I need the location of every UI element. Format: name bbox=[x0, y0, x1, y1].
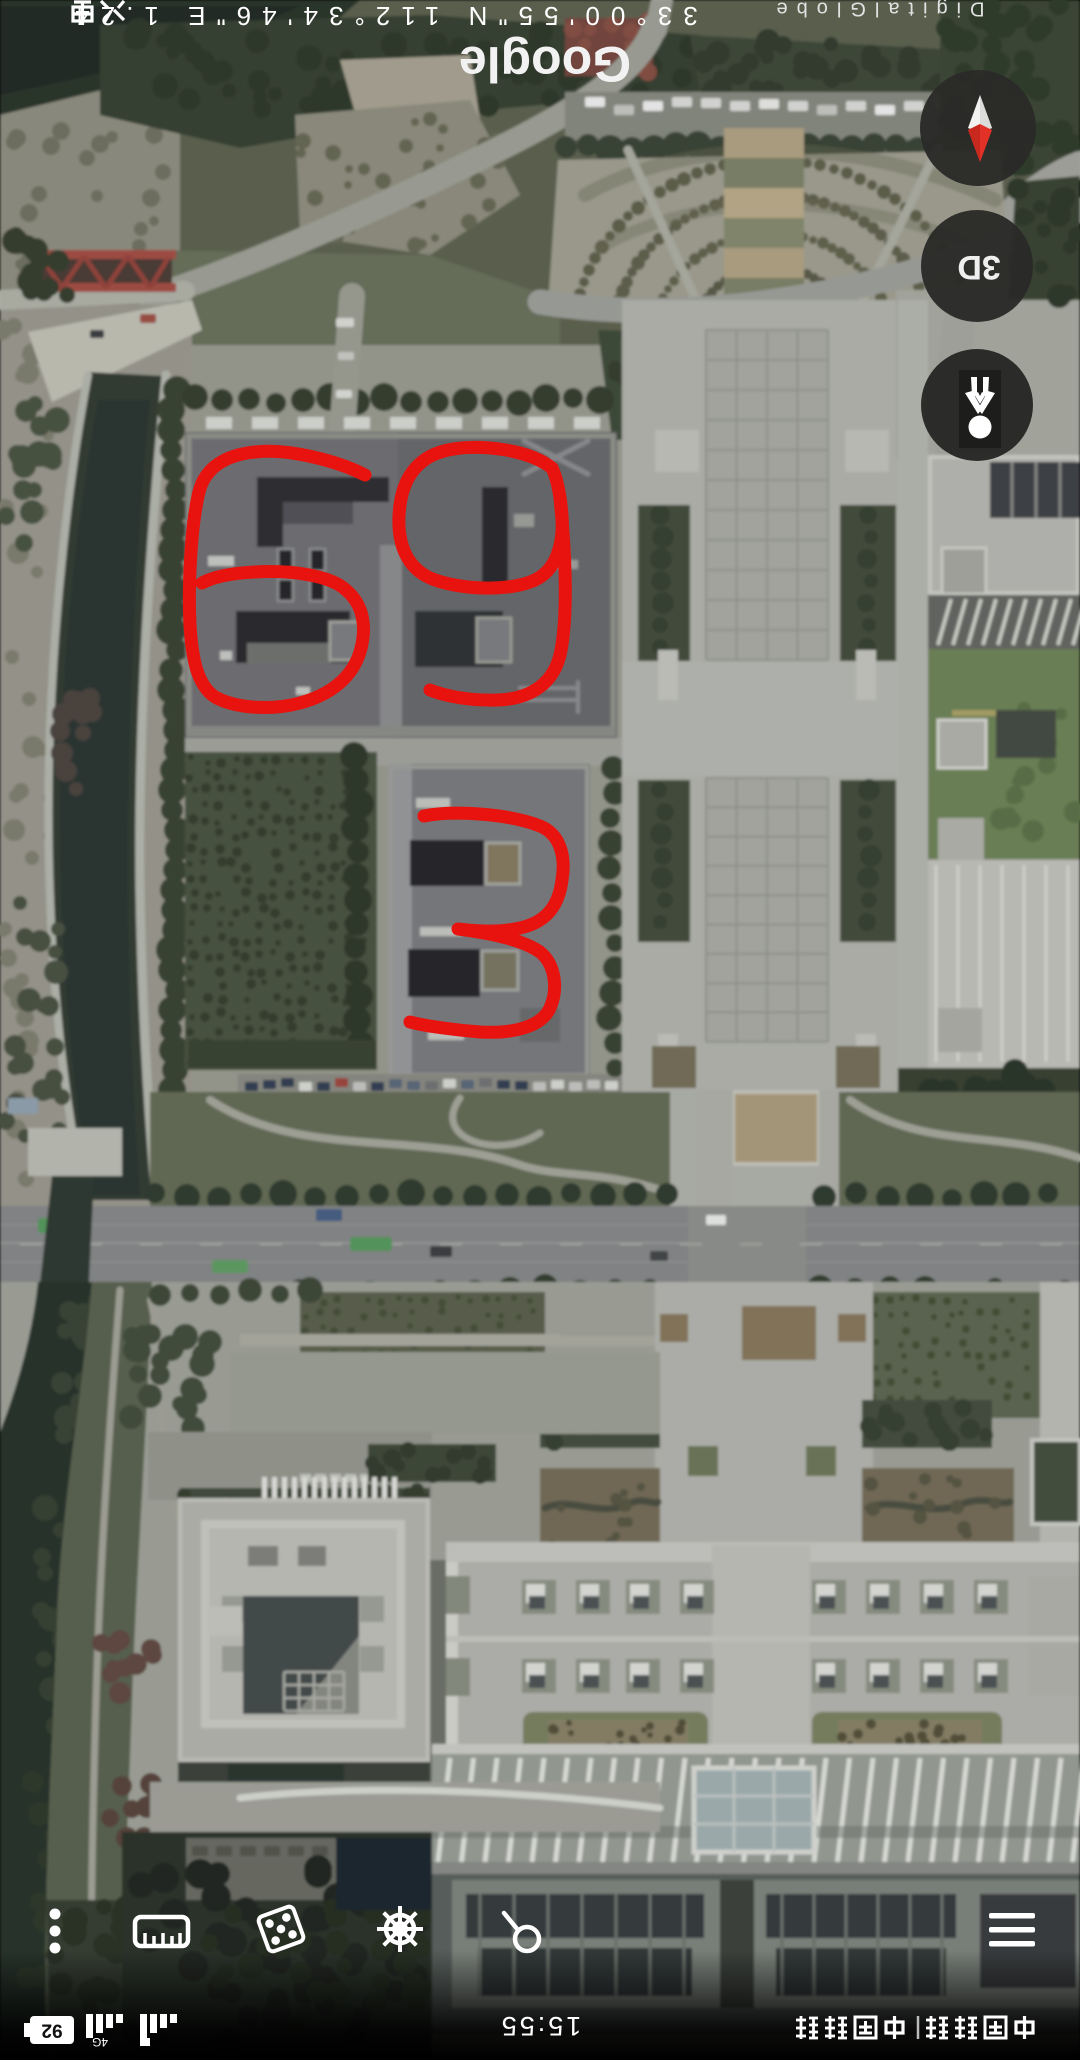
svg-text:33°00'55"N 112°34'46"E 1.24: 33°00'55"N 112°34'46"E 1.24 bbox=[64, 1, 697, 31]
svg-text:92: 92 bbox=[41, 2020, 62, 2041]
svg-text:Google: Google bbox=[459, 36, 631, 92]
svg-text:4G: 4G bbox=[92, 2035, 108, 2049]
svg-text:3D: 3D bbox=[957, 248, 1000, 286]
svg-text:15:55: 15:55 bbox=[499, 2011, 582, 2041]
svg-text:DigitalGlobe: DigitalGlobe bbox=[768, 0, 985, 20]
